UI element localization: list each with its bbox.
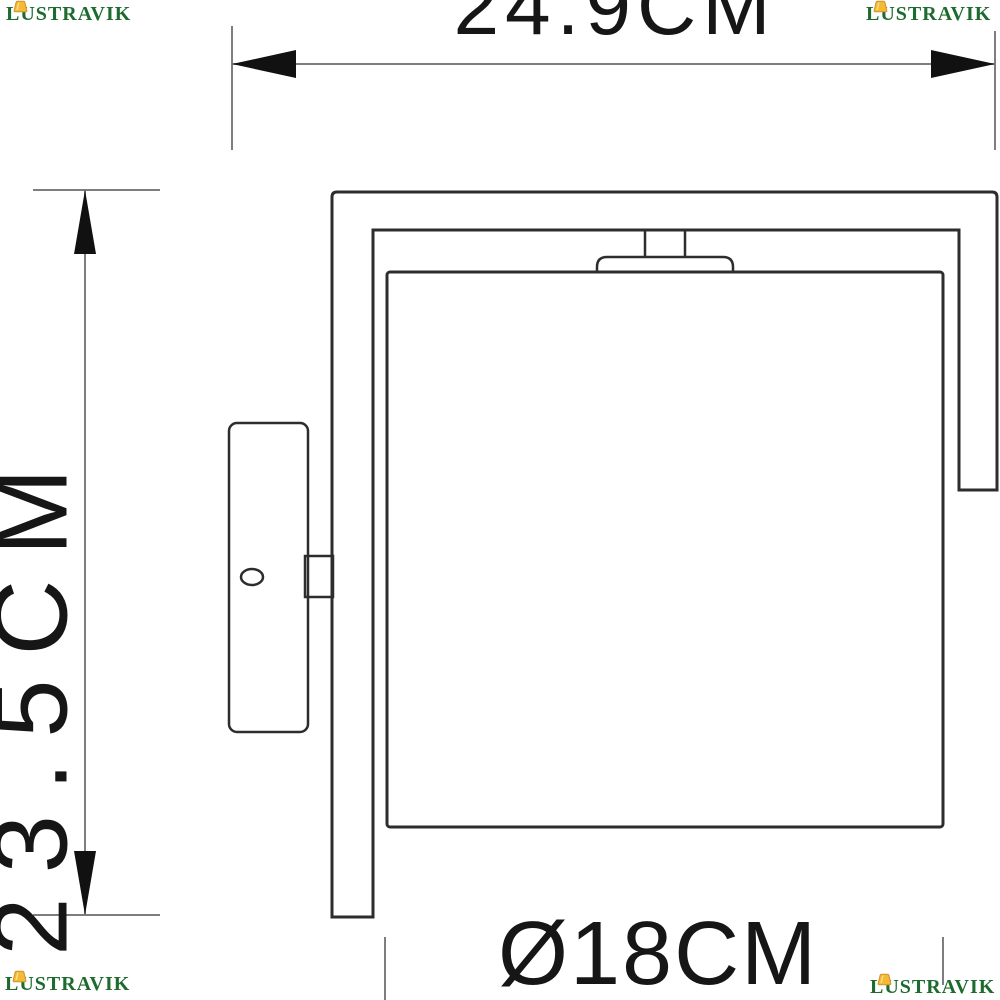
- square-shade: [387, 272, 943, 827]
- arrow-up-icon: [74, 190, 96, 254]
- brand-logo-bottom-left: LUSTRAVIK: [5, 972, 130, 996]
- arrow-left-icon: [232, 50, 296, 78]
- stem: [645, 231, 685, 258]
- lampshade-icon: [873, 0, 888, 13]
- dimension-drawing: [0, 0, 1000, 1000]
- arrow-right-icon: [931, 50, 995, 78]
- frame-arm: [332, 192, 997, 917]
- brand-logo-bottom-right: LUSTRAVIK: [870, 975, 995, 999]
- diameter-dimension-label: Ø18CM: [498, 909, 818, 999]
- width-dimension-label: 24.9CM: [453, 0, 776, 48]
- lampshade-icon: [877, 973, 892, 986]
- brand-logo-top-right: LUSTRAVIK: [866, 2, 991, 26]
- lampshade-icon: [12, 970, 27, 983]
- product-dimension-diagram: 24.9CM 23.5CM Ø18CM LUSTRAVIK LUSTRAVIK …: [0, 0, 1000, 1000]
- height-dimension-label: 23.5CM: [0, 444, 84, 956]
- screw-hole: [241, 569, 263, 585]
- brand-logo-top-left: LUSTRAVIK: [6, 2, 131, 26]
- lampshade-icon: [13, 0, 28, 13]
